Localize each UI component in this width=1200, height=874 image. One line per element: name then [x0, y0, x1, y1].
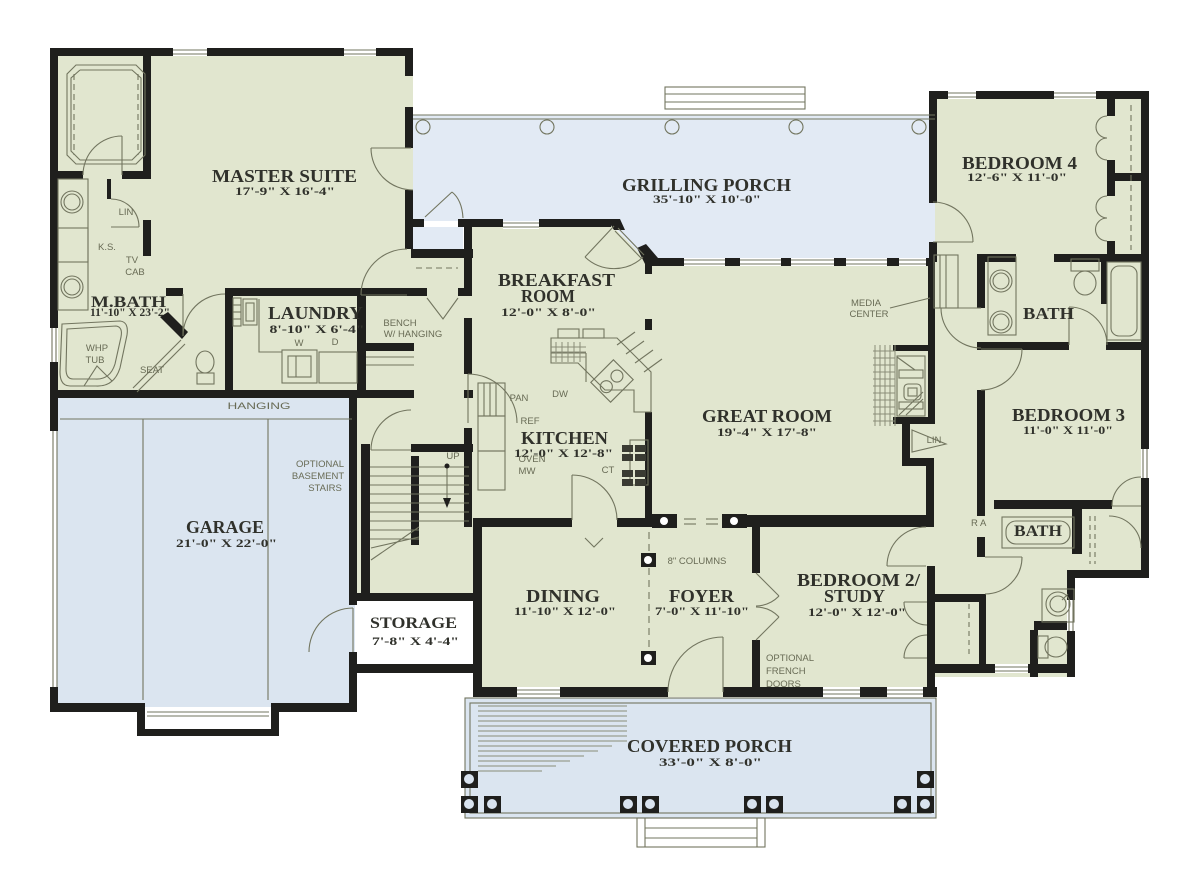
svg-text:OPTIONAL: OPTIONAL [766, 653, 814, 664]
svg-text:11'-10" X 12'-0": 11'-10" X 12'-0" [514, 606, 616, 618]
svg-text:LAUNDRY: LAUNDRY [268, 303, 363, 323]
svg-text:7'-0" X 11'-10": 7'-0" X 11'-10" [655, 606, 749, 618]
svg-text:LIN: LIN [119, 207, 134, 218]
svg-text:FRENCH: FRENCH [766, 666, 806, 677]
svg-text:12'-0" X 12'-0": 12'-0" X 12'-0" [808, 607, 906, 619]
svg-text:TV: TV [126, 255, 139, 266]
svg-text:GARAGE: GARAGE [186, 517, 264, 537]
svg-text:R A: R A [971, 518, 987, 529]
svg-text:UP: UP [446, 451, 459, 462]
svg-text:35'-10" X 10'-0": 35'-10" X 10'-0" [653, 194, 761, 206]
svg-text:17'-9" X 16'-4": 17'-9" X 16'-4" [235, 186, 335, 198]
svg-text:8'-10" X 6'-4": 8'-10" X 6'-4" [270, 324, 365, 336]
svg-text:MASTER SUITE: MASTER SUITE [212, 166, 357, 186]
svg-text:CENTER: CENTER [849, 309, 888, 320]
svg-text:BEDROOM 4: BEDROOM 4 [962, 153, 1077, 173]
svg-text:LIN: LIN [927, 435, 942, 446]
svg-text:BEDROOM 3: BEDROOM 3 [1012, 405, 1125, 425]
svg-text:CT: CT [602, 465, 615, 476]
svg-text:MW: MW [519, 466, 536, 477]
svg-text:11'-0" X 11'-0": 11'-0" X 11'-0" [1023, 425, 1113, 437]
svg-text:TUB: TUB [86, 355, 105, 366]
svg-text:DINING: DINING [526, 586, 600, 606]
svg-text:21'-0" X 22'-0": 21'-0" X 22'-0" [176, 538, 277, 550]
svg-text:BATH: BATH [1014, 523, 1063, 540]
svg-text:BENCH: BENCH [383, 318, 416, 329]
svg-text:PAN: PAN [510, 393, 529, 404]
svg-text:SEAT: SEAT [140, 365, 164, 376]
svg-text:D: D [332, 337, 339, 348]
svg-text:K.S.: K.S. [98, 242, 116, 253]
svg-text:OPTIONAL: OPTIONAL [296, 459, 344, 470]
svg-text:STAIRS: STAIRS [308, 483, 342, 494]
svg-text:MEDIA: MEDIA [851, 298, 882, 309]
svg-text:GRILLING PORCH: GRILLING PORCH [622, 175, 791, 195]
svg-text:WHP: WHP [86, 343, 108, 354]
svg-text:W: W [295, 338, 304, 349]
svg-text:CAB: CAB [125, 267, 145, 278]
svg-text:DOORS: DOORS [766, 679, 801, 690]
svg-text:12'-6" X 11'-0": 12'-6" X 11'-0" [967, 172, 1067, 184]
svg-text:COVERED PORCH: COVERED PORCH [627, 736, 792, 756]
svg-text:ROOM: ROOM [521, 286, 575, 306]
svg-text:7'-8" X 4'-4": 7'-8" X 4'-4" [372, 636, 459, 648]
svg-text:FOYER: FOYER [669, 586, 735, 606]
svg-text:STORAGE: STORAGE [370, 615, 457, 632]
svg-text:33'-0" X 8'-0": 33'-0" X 8'-0" [659, 757, 762, 769]
svg-text:BATH: BATH [1023, 304, 1074, 323]
svg-text:OVEN: OVEN [519, 454, 546, 465]
svg-text:HANGING: HANGING [228, 401, 291, 412]
svg-text:12'-0" X 8'-0": 12'-0" X 8'-0" [501, 307, 596, 319]
svg-text:W/ HANGING: W/ HANGING [384, 329, 443, 340]
svg-text:REF: REF [521, 416, 540, 427]
svg-text:GREAT ROOM: GREAT ROOM [702, 406, 832, 426]
svg-text:11'-10" X 23'-2": 11'-10" X 23'-2" [90, 307, 170, 319]
svg-text:DW: DW [552, 389, 568, 400]
svg-text:BASEMENT: BASEMENT [292, 471, 344, 482]
svg-text:8" COLUMNS: 8" COLUMNS [668, 556, 727, 567]
svg-text:19'-4" X 17'-8": 19'-4" X 17'-8" [717, 427, 817, 439]
svg-text:KITCHEN: KITCHEN [521, 428, 608, 448]
svg-text:STUDY: STUDY [824, 586, 885, 606]
